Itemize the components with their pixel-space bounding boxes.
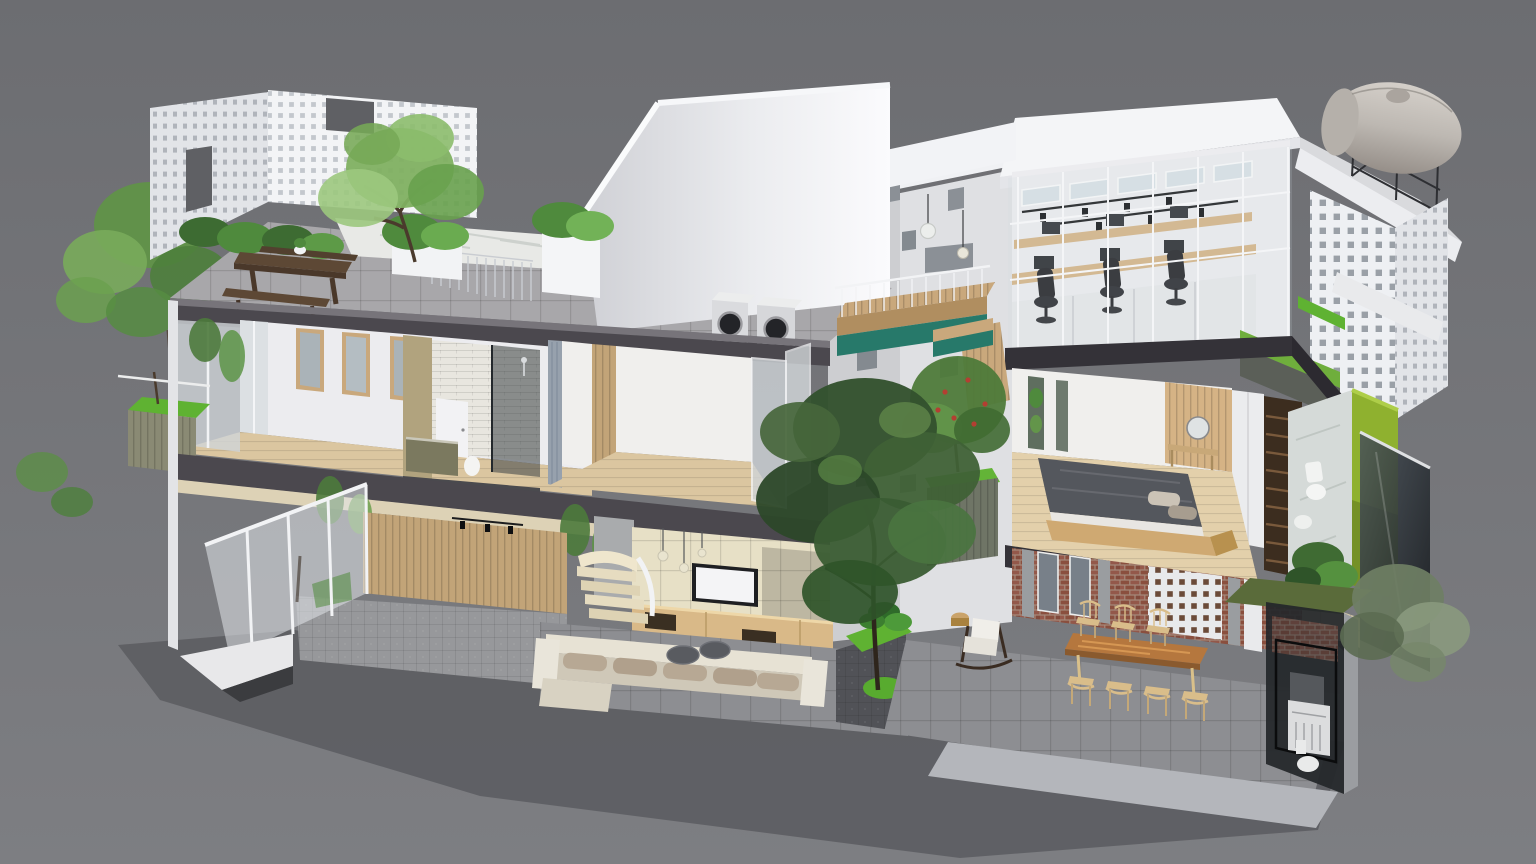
pendant-bulb [698,549,706,557]
plant-slot [1028,376,1044,450]
garage-spotlight [485,524,490,532]
shower-glass [492,345,540,477]
pendant-bulb [958,248,969,259]
pendant-bulb [658,551,668,561]
toilet-bowl [1306,484,1326,500]
vanity-mirror [1187,417,1209,439]
vanity-cabinet [406,438,458,476]
left-edge-wall-strip [168,300,178,650]
foliage-blob [344,123,400,165]
foliage-blob [106,287,178,337]
fern [884,613,912,631]
foliage-blob [408,164,484,220]
foliage-blob [1390,642,1446,682]
shower-head-disc [521,357,527,363]
toilet [464,456,480,476]
fruit [982,401,987,406]
stump-side [951,618,969,626]
concrete-pilaster [1022,549,1034,618]
toilet-tank [1305,461,1324,483]
planter-fern [566,211,614,241]
concrete-pilaster [1098,559,1110,624]
window-glass [346,336,366,393]
fruit [935,407,940,412]
fruit [942,389,947,394]
foliage-blob [51,487,93,517]
bedroom2-wall [616,346,752,462]
tv-screen [696,567,754,603]
pendant-bulb [680,564,689,573]
washing-machine [1288,700,1330,756]
table-leg [1192,668,1194,696]
curtain [548,340,562,488]
foliage-blob [888,500,976,564]
foliage-highlight [818,455,862,485]
glazed-slot [1070,556,1090,617]
garage-spotlight [508,526,513,534]
sofa-chaise [539,678,612,712]
coffee-table [700,642,730,659]
toilet-tank-sm [1296,740,1306,754]
toilet-sm [1297,756,1319,772]
coffee-table [667,646,699,664]
pot-plant [294,238,306,248]
breeze-door-opening [186,146,212,212]
foliage-blob [16,452,68,492]
planter-fern [421,222,469,250]
sofa-arm-right [800,659,828,707]
foliage-highlight [879,402,931,438]
foliage-blob [760,402,840,462]
door-post [366,485,367,594]
fruit [951,415,956,420]
slot-plant [1030,415,1042,433]
tank-lid [1386,89,1410,103]
glazed-slot [1038,552,1058,613]
concrete-pilaster [1228,577,1240,646]
slot-plant [1029,388,1043,408]
washer-door [719,313,742,336]
bidet [1294,515,1312,529]
pendant-bulb [921,224,936,239]
foliage-blob [318,169,398,227]
window-glass [300,332,320,388]
garage-spotlight [460,521,465,529]
cutaway-house-render [0,0,1536,864]
fruit [971,421,976,426]
foliage-blob [802,560,898,624]
hanging-vine [219,330,245,382]
fruit [965,377,970,382]
wall-window [902,230,916,251]
slat-wall-texture [592,344,616,468]
wall-sliver [562,341,592,468]
render-stage [0,0,1536,864]
hanging-vine [189,318,221,362]
door-knob [461,428,464,431]
plant-slot [1056,380,1068,452]
wall-window [948,187,964,211]
glass-partition-tint [1008,146,1292,354]
